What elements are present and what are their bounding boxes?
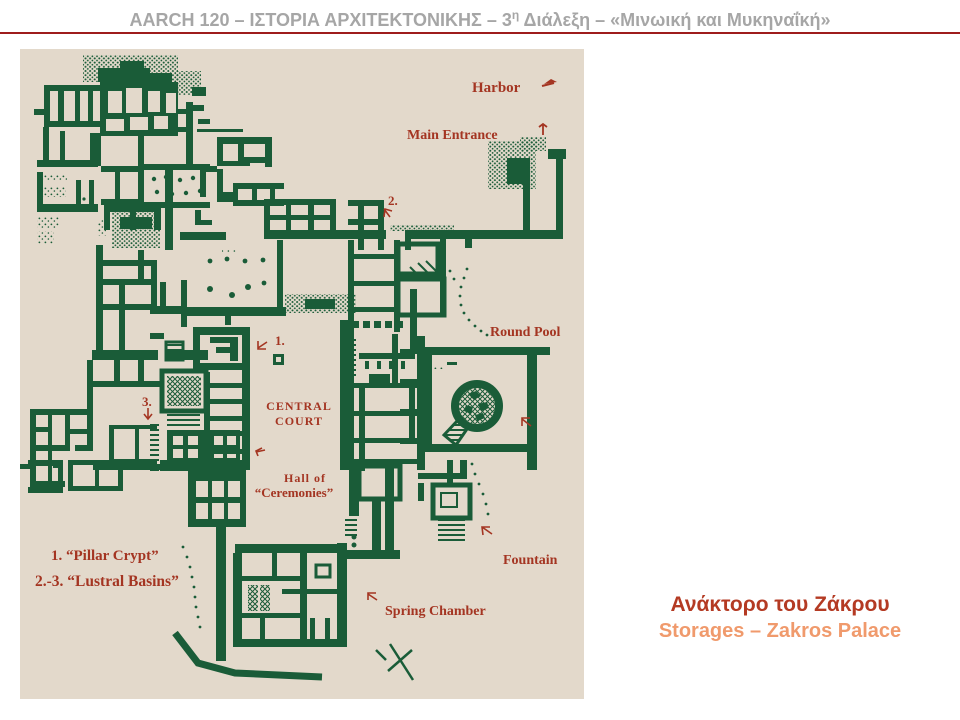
- svg-text:Round Pool: Round Pool: [490, 325, 561, 340]
- svg-text:1. “Pillar Crypt”: 1. “Pillar Crypt”: [51, 548, 159, 564]
- svg-text:1.: 1.: [275, 333, 285, 348]
- svg-text:CENTRAL: CENTRAL: [266, 399, 332, 413]
- svg-text:Main Entrance: Main Entrance: [407, 128, 498, 143]
- svg-text:Hall of: Hall of: [284, 471, 326, 485]
- svg-text:“Ceremonies”: “Ceremonies”: [255, 485, 333, 500]
- svg-text:Fountain: Fountain: [503, 553, 558, 568]
- svg-text:Harbor: Harbor: [472, 80, 521, 96]
- svg-text:2.-3. “Lustral Basins”: 2.-3. “Lustral Basins”: [35, 573, 179, 590]
- svg-text:COURT: COURT: [275, 414, 323, 428]
- svg-text:2.: 2.: [388, 193, 398, 208]
- svg-text:Spring Chamber: Spring Chamber: [385, 604, 486, 619]
- svg-text:3.: 3.: [142, 394, 152, 409]
